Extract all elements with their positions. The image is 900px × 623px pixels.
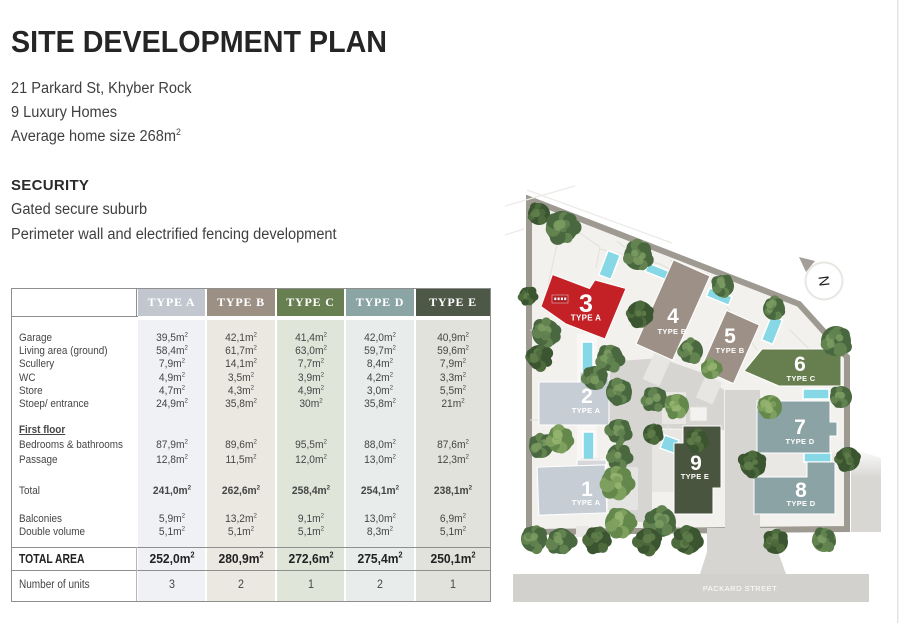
svg-text:6: 6	[794, 353, 806, 376]
svg-text:TYPE E: TYPE E	[681, 472, 709, 481]
svg-text:TYPE A: TYPE A	[572, 498, 601, 507]
svg-text:TYPE D: TYPE D	[787, 499, 816, 508]
svg-text:TYPE A: TYPE A	[572, 406, 601, 415]
svg-text:N: N	[816, 275, 833, 287]
svg-text:TYPE A: TYPE A	[571, 314, 601, 323]
svg-text:5: 5	[724, 325, 736, 348]
svg-text:TYPE D: TYPE D	[786, 437, 815, 446]
svg-text:7: 7	[794, 416, 806, 439]
svg-text:TYPE C: TYPE C	[787, 374, 816, 383]
svg-text:4: 4	[667, 305, 679, 328]
svg-text:TYPE B: TYPE B	[658, 327, 687, 336]
svg-text:TYPE B: TYPE B	[716, 346, 745, 355]
svg-text:PACKARD STREET: PACKARD STREET	[703, 584, 777, 593]
